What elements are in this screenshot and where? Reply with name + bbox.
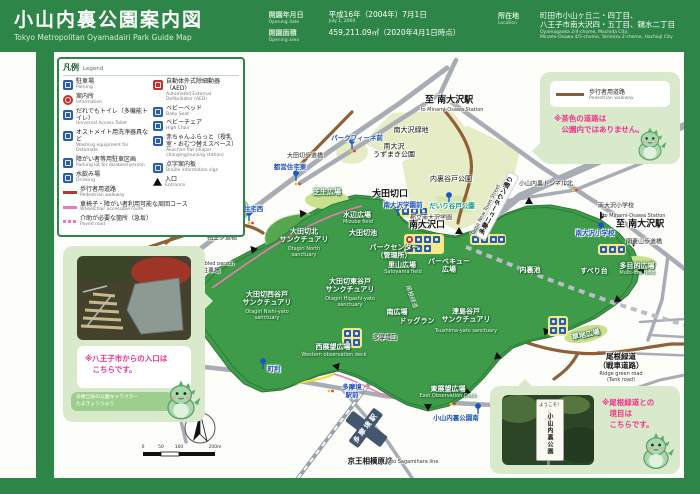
legend-item: 車椅子・障がい者利用可能な周回コースWheelchair accessible … (63, 202, 239, 214)
legend-item: 駐車場Parking (63, 79, 149, 91)
facility-cluster-multiuse (598, 244, 626, 255)
line-red-icon (63, 191, 77, 194)
header: 小山内裏公園案内図 Tokyo Metropolitan Oyamadairi … (0, 0, 700, 52)
facility-cluster-park-center (404, 234, 444, 254)
legend-item: 赤ちゃんふらっと（授乳室・おむつ替えスペース）Akachan flat (dia… (153, 135, 239, 159)
opening-area-value: 459,211.09㎡（2020年4月1日時点） (329, 28, 461, 37)
legend-title: 凡例 (63, 62, 79, 73)
mascot-tamakyoryu-icon (632, 122, 668, 162)
legend-item: だれでもトイレ（多機能トイレ）Universal Access Toilet (63, 109, 149, 128)
facility-cluster-west-observation (342, 328, 362, 348)
mascot-tamakyoryu-icon (161, 374, 203, 420)
park-guide-map-page: { "header": { "title_jp": "小山内裏公園案内図", "… (0, 0, 700, 494)
header-location-info: 所在地 Location 町田市小山ヶ丘二・四丁目、 八王子市南大沢四・五丁目、… (498, 11, 700, 41)
welcome-sign: ようこそ！ ここから先は 小山内裏公園 (536, 399, 564, 461)
legend-item: 水飲み場Drinking (63, 172, 149, 184)
scale-tick: 200m (209, 445, 222, 450)
braille-icon (153, 163, 163, 173)
toilet-icon (63, 110, 73, 120)
legend-item: 障がい者等用駐車区画Parking lot for disabled perso… (63, 157, 149, 169)
scale-bar (143, 452, 215, 456)
facility-cluster-otagiri-gate (400, 206, 428, 217)
location-label: 所在地 (498, 11, 532, 21)
brown-road-line-icon (556, 93, 584, 96)
aed-icon (153, 80, 163, 90)
ostomate-icon (63, 131, 73, 141)
akachan-icon (153, 136, 163, 146)
legend-item: 歩行者用道路Pedestrian walkway (63, 187, 149, 199)
info-icon (63, 95, 73, 105)
frame-strip-right (684, 52, 700, 478)
legend-panel: 凡例 Legend 駐車場Parking案内所Informationだれでもトイ… (57, 57, 245, 237)
legend-item: 案内所Information (63, 94, 149, 106)
callout-ridge-boundary: ようこそ！ ここから先は 小山内裏公園 ※尾根緑道との 境目は こちらです。 (490, 386, 680, 474)
location-value: 町田市小山ヶ丘二・四丁目、 (540, 11, 700, 20)
bubble-walkway-label: 歩行者用道路 (589, 87, 634, 96)
disabled-parking-icon (63, 158, 73, 168)
scale-tick: 100 (175, 445, 184, 450)
scale-tick: 0 (142, 445, 145, 450)
legend-column-left: 駐車場Parking案内所Informationだれでもトイレ（多機能トイレ）U… (63, 79, 149, 202)
header-opening-info: 開園年月日 Opening date 平成16年（2004年）7月1日 July… (269, 10, 498, 43)
mascot-caption: 多摩丘陵の公園キャラクター たまきょうりゅう (71, 392, 173, 411)
legend-column-right: 自動体外式除細動器（AED）Automated External Defibri… (153, 79, 239, 202)
legend-item: ベビーベッドBaby Seat (153, 106, 239, 118)
page-title-en: Tokyo Metropolitan Oyamadairi Park Guide… (14, 33, 269, 42)
legend-item: 入口Entrance (153, 177, 239, 189)
line-pink-icon (63, 206, 77, 209)
parking-icon (63, 80, 73, 90)
page-title: 小山内裏公園案内図 (14, 10, 269, 31)
legend-item: 自動体外式除細動器（AED）Automated External Defibri… (153, 79, 239, 103)
facility-cluster-minamiosawa-gate (470, 234, 506, 245)
entrance-icon (153, 178, 162, 186)
hachioji-note: ※八王子市からの入口は こちらです。 (85, 354, 167, 376)
legend-item: 介助が必要な箇所（急坂）Paved road (63, 216, 239, 228)
entrance-photo (77, 256, 191, 340)
mascot-tamakyoryu-icon (636, 426, 676, 470)
legend-item: ベビーチェアHigh Chair (153, 120, 239, 132)
opening-date-value: 平成16年（2004年）7月1日 (329, 10, 427, 19)
legend-item: オストメイト用洗浄器具などWashing equipment for Ostom… (63, 130, 149, 154)
welcome-sign-photo: ようこそ！ ここから先は 小山内裏公園 (502, 395, 594, 465)
frame-footer (0, 478, 700, 494)
scale-tick: 50 (158, 445, 164, 450)
facility-cluster-grass-field (548, 316, 568, 336)
note-bubble-brown-roads: 歩行者用道路 Pedestrian walkway ※茶色の道路は 公園内ではあ… (540, 72, 680, 164)
callout-hachioji-entrance: ※八王子市からの入口は こちらです。 多摩丘陵の公園キャラクター たまきょうりゅ… (63, 246, 205, 422)
opening-date-label: 開園年月日 (269, 10, 321, 20)
drinking-icon (63, 173, 73, 183)
title-block: 小山内裏公園案内図 Tokyo Metropolitan Oyamadairi … (14, 10, 269, 42)
opening-area-label: 開園面積 (269, 28, 321, 38)
baby-bed-icon (153, 107, 163, 117)
legend-item: 点字案内板Braille information sign (153, 162, 239, 174)
line-pink-dash-icon (63, 220, 77, 223)
legend-full-rows: 車椅子・障がい者利用可能な周回コースWheelchair accessible … (63, 202, 239, 229)
bubble-note: ※茶色の道路は 公園内ではありません。 (554, 114, 644, 136)
frame-strip-left (36, 52, 54, 478)
baby-chair-icon (153, 121, 163, 131)
